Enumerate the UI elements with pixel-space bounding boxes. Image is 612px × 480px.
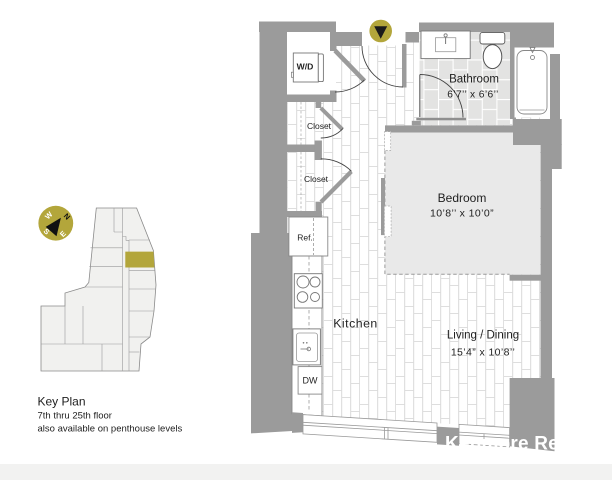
svg-text:6’7’’ x 6’6’’: 6’7’’ x 6’6’’	[447, 90, 498, 101]
svg-text:W/D: W/D	[297, 61, 314, 71]
svg-text:10’8’’ x 10’0”: 10’8’’ x 10’0”	[430, 208, 494, 220]
svg-text:Ref.: Ref.	[297, 233, 313, 243]
svg-text:Closet: Closet	[307, 121, 332, 131]
svg-text:also available on penthouse le: also available on penthouse levels	[38, 424, 183, 435]
svg-text:Key Plan: Key Plan	[38, 395, 86, 409]
svg-text:Closet: Closet	[304, 174, 329, 184]
svg-text:DW: DW	[303, 376, 318, 386]
svg-text:Living / Dining: Living / Dining	[447, 330, 519, 342]
svg-text:Kitchen: Kitchen	[333, 317, 378, 331]
svg-text:7th thru 25th floor: 7th thru 25th floor	[38, 411, 112, 422]
svg-text:Kenmore Re: Kenmore Re	[445, 434, 559, 455]
svg-text:Bedroom: Bedroom	[438, 191, 487, 205]
svg-text:15’4” x 10’8’’: 15’4” x 10’8’’	[451, 347, 515, 359]
svg-text:Bathroom: Bathroom	[449, 74, 499, 86]
